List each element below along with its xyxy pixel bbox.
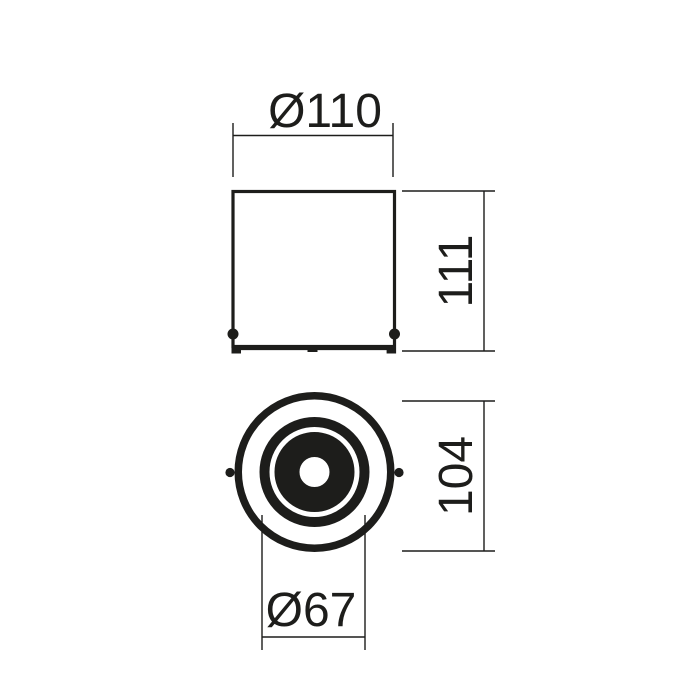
dimension-height: 111 bbox=[402, 191, 495, 351]
bottom-view bbox=[225, 396, 403, 549]
base-foot-right bbox=[387, 348, 397, 354]
dimension-label-top-diameter: Ø110 bbox=[268, 85, 382, 138]
reflector-annulus bbox=[287, 445, 342, 500]
side-view-body-outline bbox=[233, 192, 395, 347]
dimension-label-body-height: 104 bbox=[430, 436, 483, 516]
technical-drawing-page: Ø110 111 104 bbox=[0, 0, 700, 700]
side-view bbox=[228, 192, 401, 354]
bottom-tab-left bbox=[225, 468, 234, 477]
base-foot-left bbox=[232, 348, 242, 354]
base-center-tab bbox=[308, 348, 318, 352]
dimension-top-diameter: Ø110 bbox=[233, 85, 393, 177]
technical-drawing: Ø110 111 104 bbox=[0, 0, 700, 700]
dimension-label-height: 111 bbox=[430, 235, 483, 308]
bottom-tab-right bbox=[394, 468, 403, 477]
dimension-label-aperture-diameter: Ø67 bbox=[266, 584, 357, 637]
dimension-body-height: 104 bbox=[402, 401, 495, 551]
